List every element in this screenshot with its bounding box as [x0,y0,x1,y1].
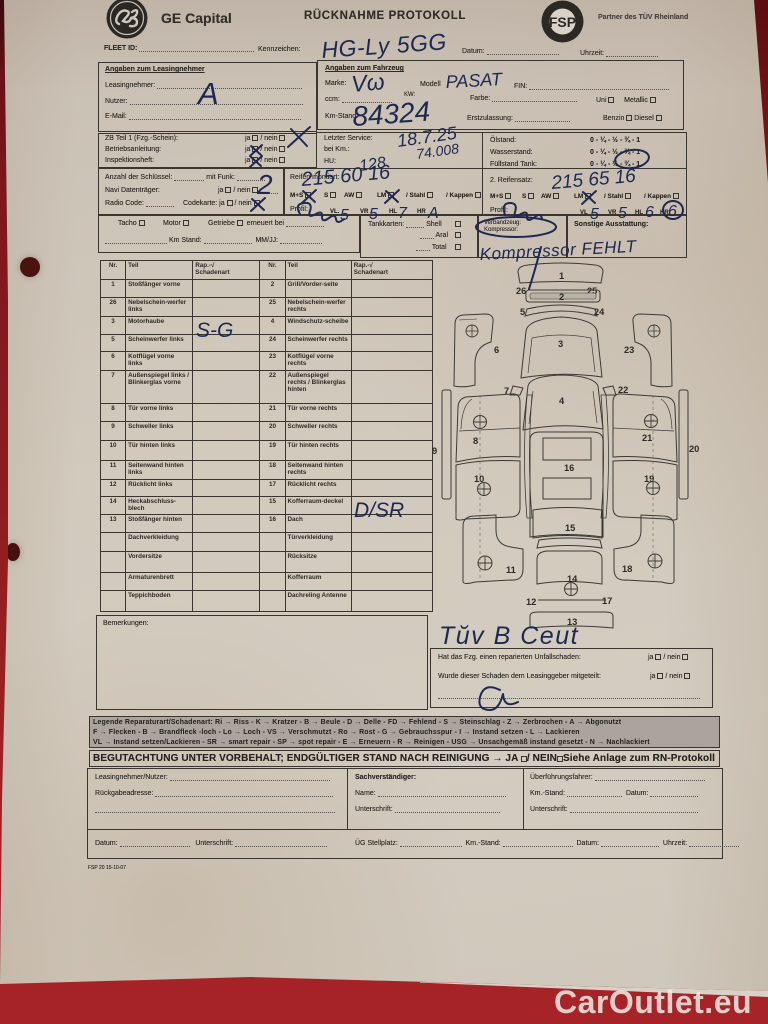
svg-text:215 65 16: 215 65 16 [550,166,637,194]
svg-text:6: 6 [645,204,654,221]
svg-text:5: 5 [618,205,627,222]
svg-text:7: 7 [398,205,408,222]
svg-text:5: 5 [369,206,378,223]
svg-text:Tŭv B Ceut: Tŭv B Ceut [439,622,579,650]
svg-text:215 60 16: 215 60 16 [300,161,392,191]
svg-text:PASAT: PASAT [445,69,504,92]
svg-text:A: A [427,205,439,222]
svg-text:D/SR: D/SR [354,499,404,522]
svg-text:Kompressor FEHLT: Kompressor FEHLT [479,237,638,264]
svg-text:5: 5 [590,206,599,223]
svg-text:5: 5 [340,207,349,224]
svg-text:HG-Ly 5GG: HG-Ly 5GG [321,28,448,63]
svg-text:S-G: S-G [196,319,233,342]
svg-text:Vω: Vω [350,68,385,97]
svg-text:84324: 84324 [351,96,431,132]
svg-text:2: 2 [256,169,273,200]
svg-text:A: A [196,76,219,111]
